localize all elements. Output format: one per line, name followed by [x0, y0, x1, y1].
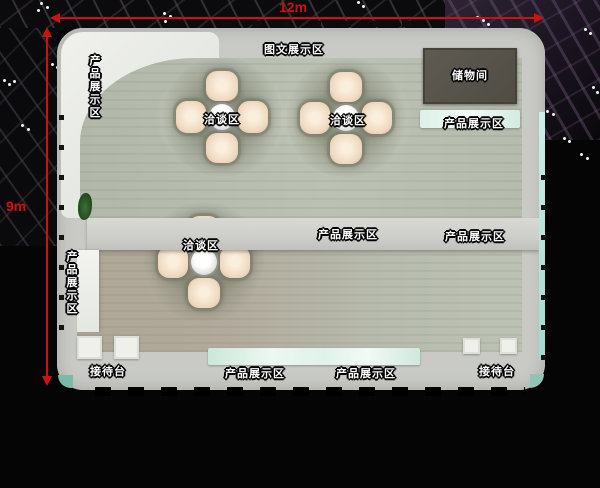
label-product-right-top: 产品展示区: [444, 115, 504, 131]
label-graphic-display: 图文展示区: [264, 41, 324, 57]
ceiling-light: [563, 137, 566, 140]
corner-accent: [58, 375, 73, 388]
ceiling-light: [592, 86, 595, 89]
chair-petal: [330, 134, 362, 164]
label-product-mid-center: 产品展示区: [318, 226, 378, 242]
width-dimension-label: 12m: [279, 0, 307, 15]
chair-petal: [188, 278, 220, 308]
label-product-mid-right: 产品展示区: [445, 228, 505, 244]
width-dimension-line: [57, 17, 537, 19]
chair-petal: [206, 71, 238, 101]
ceiling-light: [51, 63, 54, 66]
ceiling-light: [546, 110, 549, 113]
reception-desk-block: [114, 336, 139, 359]
arrow-up-icon: [42, 27, 52, 37]
chair-petal: [330, 72, 362, 102]
label-product-left-bottom: 产品展示区: [63, 251, 79, 316]
ceiling-light: [3, 79, 6, 82]
height-dimension-label: 9m: [6, 198, 26, 214]
chair-petal: [206, 133, 238, 163]
ceiling-light: [357, 1, 360, 4]
ceiling-light: [40, 2, 43, 5]
chair-petal: [238, 101, 268, 133]
label-product-bottom-1: 产品展示区: [225, 365, 285, 381]
arrow-left-icon: [50, 13, 60, 23]
chair-petal: [362, 102, 392, 134]
wall-ticks-right: [541, 175, 546, 360]
ceiling-light: [584, 28, 587, 31]
chair-petal: [300, 102, 330, 134]
height-dimension-line: [46, 30, 48, 383]
ceiling-light: [21, 124, 24, 127]
corner-accent: [530, 374, 544, 388]
booth-floorplan-scene: 12m 9m: [0, 0, 600, 488]
arrow-right-icon: [534, 13, 544, 23]
display-counter-bottom: [208, 348, 420, 365]
label-storage-room: 储物间: [452, 67, 488, 83]
reception-desk-block: [500, 338, 517, 354]
arrow-down-icon: [42, 376, 52, 386]
wall-ticks-top: [222, 21, 418, 27]
label-product-left-top: 产品展示区: [86, 55, 102, 120]
label-reception-right: 接待台: [479, 363, 515, 379]
display-strip-left-wall: [77, 250, 99, 332]
reception-desk-block: [77, 336, 102, 359]
chair-petal: [220, 246, 250, 278]
wall-ticks-bottom: [95, 387, 525, 396]
label-negotiation-2: 洽谈区: [330, 112, 366, 128]
reception-desk-block: [463, 338, 480, 354]
label-negotiation-1: 洽谈区: [204, 111, 240, 127]
label-reception-left: 接待台: [90, 363, 126, 379]
chair-petal: [176, 101, 206, 133]
label-product-bottom-2: 产品展示区: [336, 365, 396, 381]
exhibition-booth: 图文展示区 储物间 产品展示区 产品展示区 产品展示区 洽谈区 洽谈区 洽谈区 …: [57, 28, 545, 390]
ceiling-light: [580, 153, 583, 156]
ceiling-light: [163, 12, 166, 15]
wall-ticks-left: [59, 115, 64, 330]
label-negotiation-3: 洽谈区: [183, 237, 219, 253]
